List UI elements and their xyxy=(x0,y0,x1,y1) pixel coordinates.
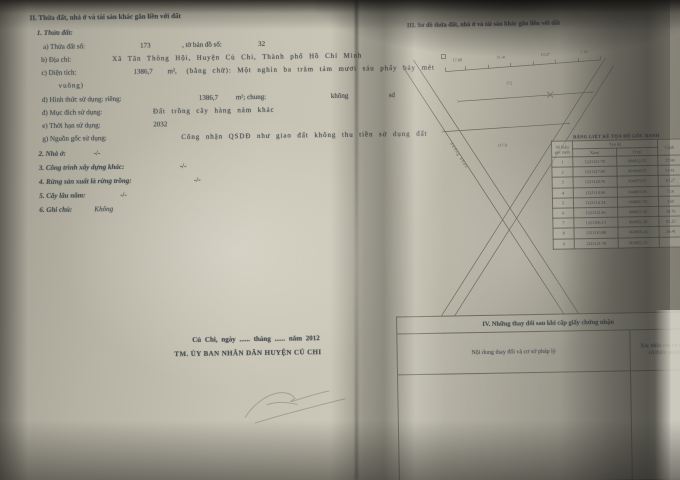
tick-label-1: 17.88 xyxy=(452,57,462,62)
section-iii-heading: III. Sơ đồ thửa đất, nhà ở và tài sản kh… xyxy=(407,20,560,31)
col-authority-confirm: Xác nhận của cơ quan có thẩm quyền xyxy=(629,329,680,370)
authority-confirm-cell xyxy=(630,370,680,479)
col-edge-length: Cạnh xyxy=(657,139,680,155)
coord-table-row: 91221121.78604952.55 xyxy=(553,236,680,248)
coordinate-table: Số hiệu góc ranh Tọa độ Cạnh X(m) Y(m) 1… xyxy=(551,138,680,249)
tick-label-4: 7.16 xyxy=(580,49,587,54)
coordinate-table-block: BẢNG LIỆT KÊ TỌA ĐỘ GÓC RANH Số hiệu góc… xyxy=(551,132,680,249)
col-change-content: Nội dung thay đổi và cơ sở pháp lý xyxy=(397,330,630,374)
neighbor-parcel-label: 172 xyxy=(506,80,512,85)
right-page: III. Sơ đồ thửa đất, nhà ở và tài sản kh… xyxy=(0,0,680,480)
coord-table-body: 11221121.78604952.5517.8821221127.806049… xyxy=(552,155,680,249)
parcel-label: (173) xyxy=(498,142,508,147)
document-photo: II. Thửa đất, nhà ở và tài sản khác gắn … xyxy=(0,0,680,480)
col-authority-confirm-line2: có thẩm quyền xyxy=(649,349,680,357)
section-iv-table: IV. Những thay đổi sau khi cấp giấy chứn… xyxy=(396,311,680,480)
tick-label-2: 31.41 xyxy=(496,55,506,60)
road-label: đường nhựa xyxy=(449,141,470,169)
tick-label-3: 10.27 xyxy=(540,52,550,57)
change-content-cell xyxy=(398,371,632,480)
col-corner-number: Số hiệu góc ranh xyxy=(551,141,572,157)
